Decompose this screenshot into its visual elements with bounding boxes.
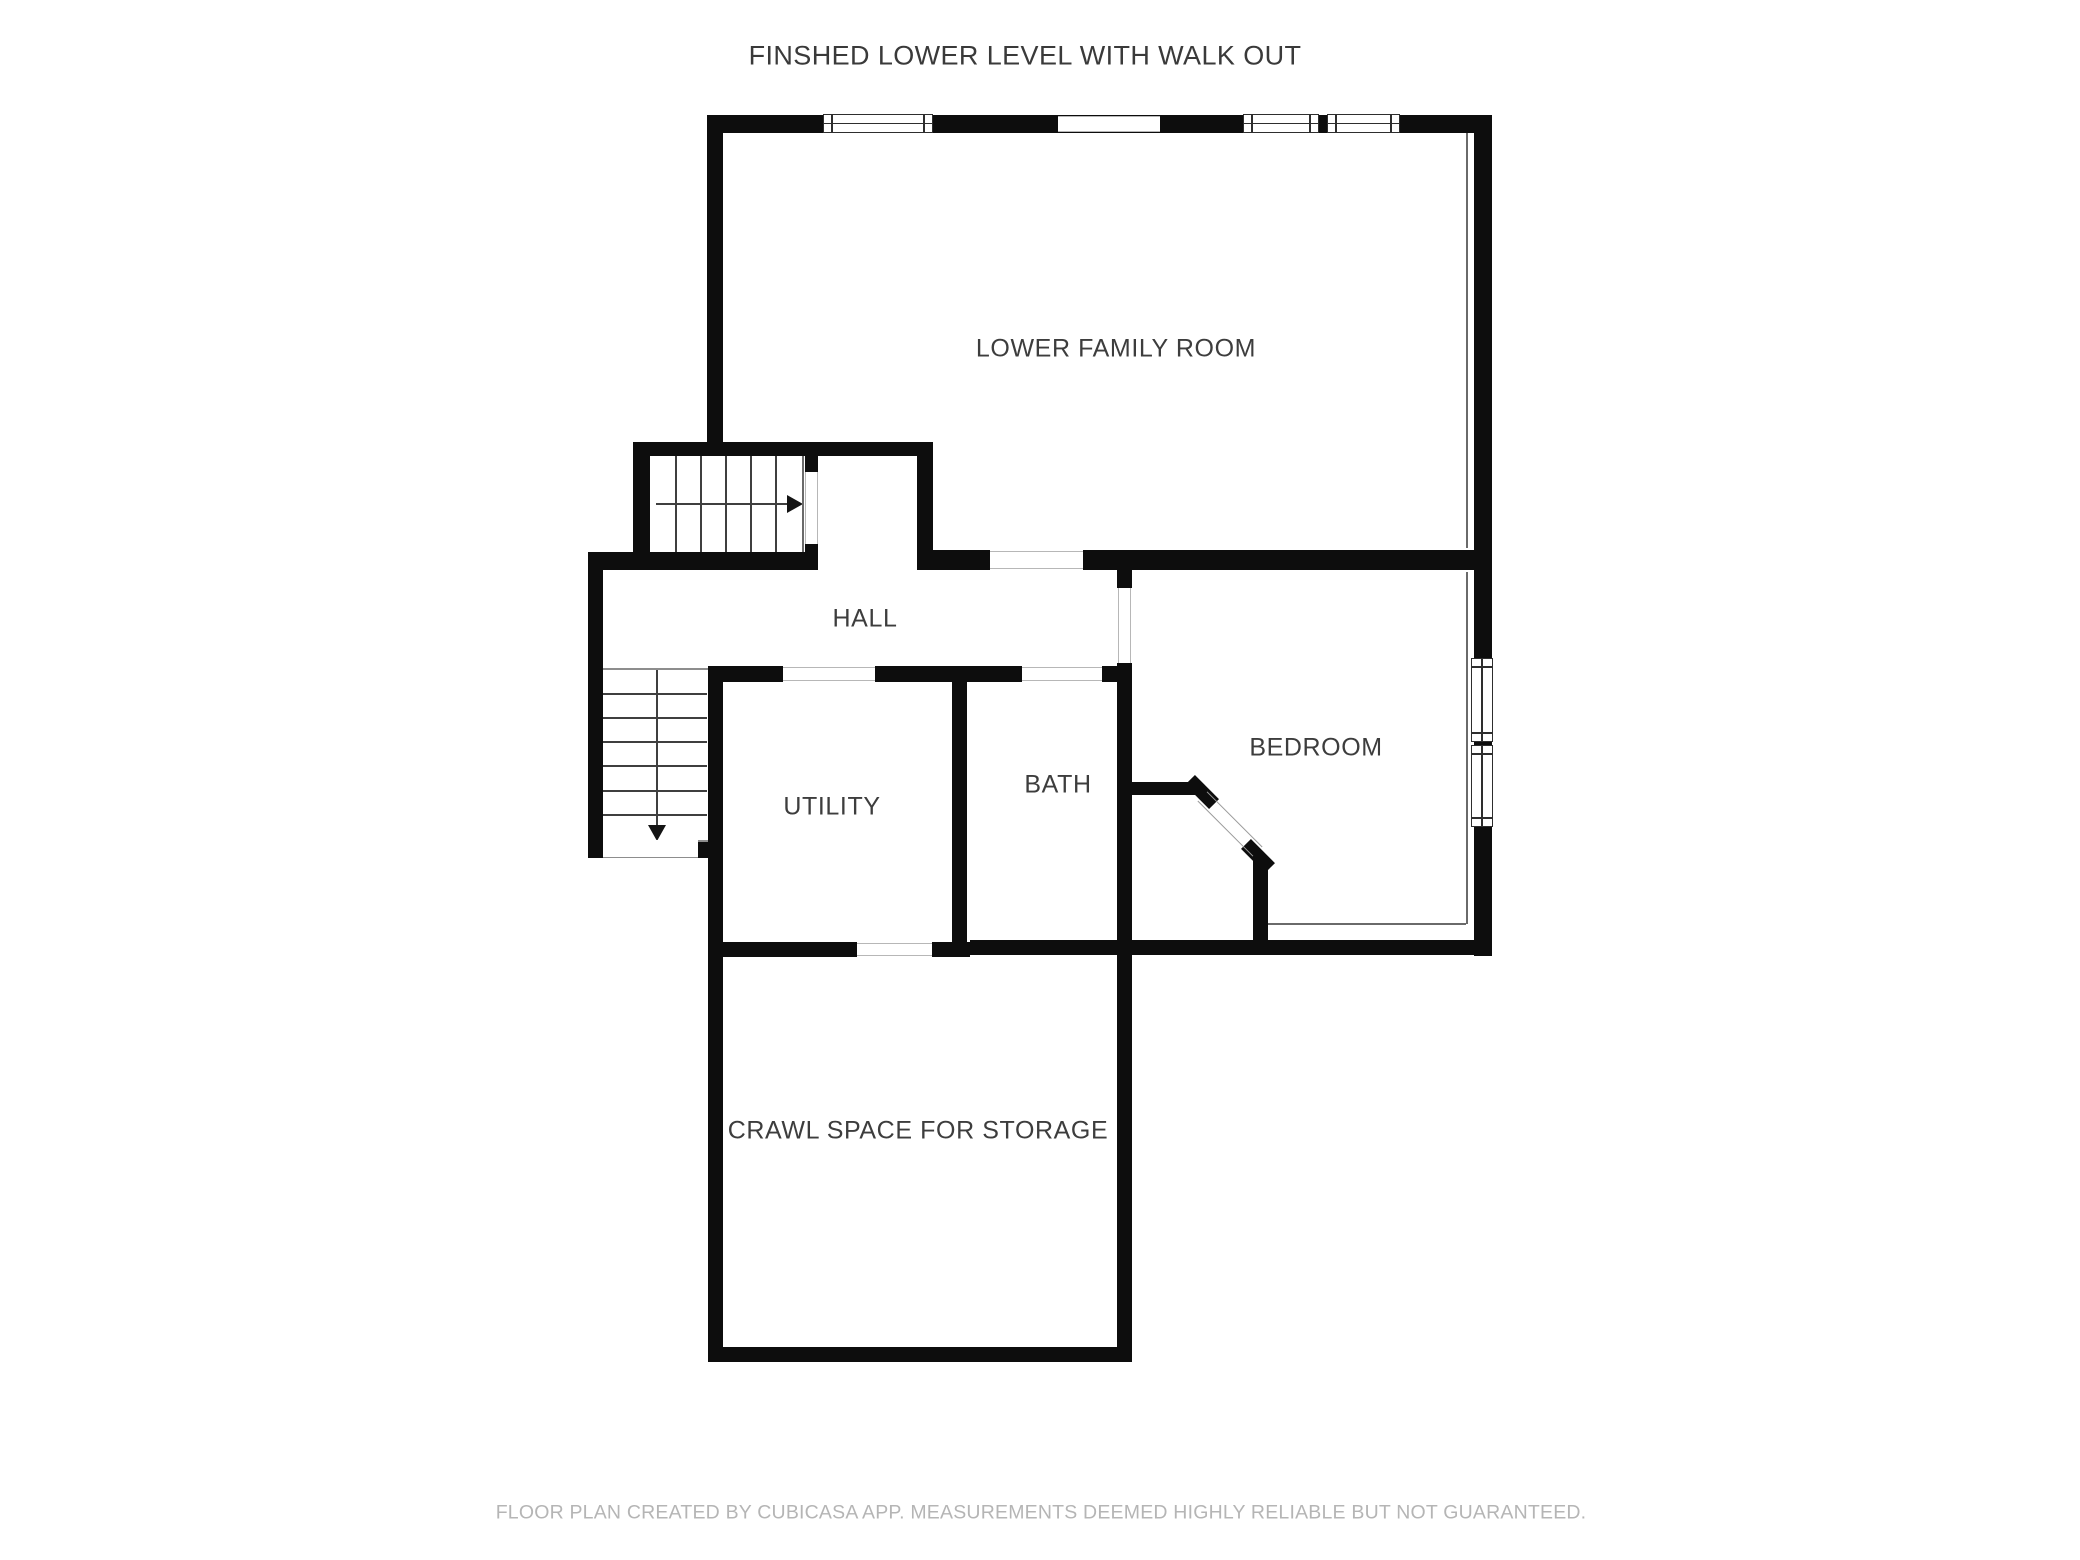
wall: [1117, 663, 1132, 1362]
window-end-cap: [1472, 753, 1492, 755]
window-end-cap: [1472, 817, 1492, 819]
wall: [1132, 940, 1492, 955]
door-opening: [783, 667, 875, 681]
door-opening: [1022, 667, 1102, 681]
wall: [708, 666, 723, 1362]
wall: [707, 115, 723, 456]
wall: [970, 940, 1117, 955]
room-outline-line: [802, 456, 804, 552]
wall: [805, 456, 818, 472]
window: [823, 114, 933, 133]
wall: [1474, 115, 1492, 956]
window-end-cap: [1472, 666, 1492, 668]
wall: [917, 442, 933, 570]
window: [1471, 745, 1493, 827]
window-center-line: [1328, 123, 1399, 125]
window-center-line: [1481, 659, 1483, 741]
door-opening: [990, 551, 1083, 569]
room-label-bedroom: BEDROOM: [1249, 734, 1382, 763]
stair-tread: [603, 717, 707, 719]
window-center-line: [824, 123, 932, 125]
wall: [875, 666, 1022, 682]
wall: [723, 666, 783, 682]
window-end-cap: [1309, 115, 1311, 132]
stair-tread: [603, 765, 707, 767]
window-end-cap: [1472, 732, 1492, 734]
window-center-line: [1244, 123, 1318, 125]
stair-tread: [603, 693, 707, 695]
window: [1471, 658, 1493, 742]
wall: [952, 682, 967, 942]
door-opening: [857, 943, 932, 956]
window-end-cap: [1335, 115, 1337, 132]
room-label-bath: BATH: [1024, 771, 1091, 800]
wall: [723, 942, 857, 957]
wall: [932, 942, 970, 957]
room-outline-line: [1466, 133, 1468, 548]
wall: [588, 552, 603, 858]
stair-arrow-shaft: [656, 503, 787, 505]
window-end-cap: [923, 115, 925, 132]
wall: [933, 550, 990, 570]
stair-tread: [603, 814, 707, 816]
stair-down-arrow: [648, 825, 666, 841]
room-outline-line: [1466, 572, 1468, 924]
wall: [698, 842, 723, 858]
window-center-line: [1481, 746, 1483, 826]
window: [1243, 114, 1319, 133]
room-outline-line: [1268, 923, 1466, 925]
room-label-lower-family-room: LOWER FAMILY ROOM: [976, 335, 1256, 364]
stair-edge: [603, 668, 713, 670]
window-end-cap: [831, 115, 833, 132]
door-opening: [1058, 116, 1160, 132]
door-opening: [805, 472, 818, 544]
wall: [588, 552, 818, 570]
stair-tread: [603, 790, 707, 792]
window-end-cap: [1251, 115, 1253, 132]
plan-footer-disclaimer: FLOOR PLAN CREATED BY CUBICASA APP. MEAS…: [496, 1502, 1587, 1525]
door-opening: [1118, 588, 1131, 663]
closet-door-opening: [1197, 791, 1262, 856]
room-label-utility: UTILITY: [783, 793, 880, 822]
wall: [1083, 550, 1474, 570]
wall: [633, 442, 933, 456]
stair-tread: [603, 741, 707, 743]
wall: [708, 1347, 1132, 1362]
room-label-hall: HALL: [833, 605, 898, 634]
wall: [1117, 570, 1132, 588]
window-end-cap: [1390, 115, 1392, 132]
stair-bottom-landing: [603, 840, 698, 858]
wall: [633, 442, 650, 556]
window: [1327, 114, 1400, 133]
floor-plan-page: FINSHED LOWER LEVEL WITH WALK OUT LOWER …: [0, 0, 2080, 1560]
room-label-crawl-space: CRAWL SPACE FOR STORAGE: [728, 1117, 1109, 1146]
stair-up-arrow: [787, 495, 803, 513]
stair-arrow-shaft: [656, 670, 658, 825]
